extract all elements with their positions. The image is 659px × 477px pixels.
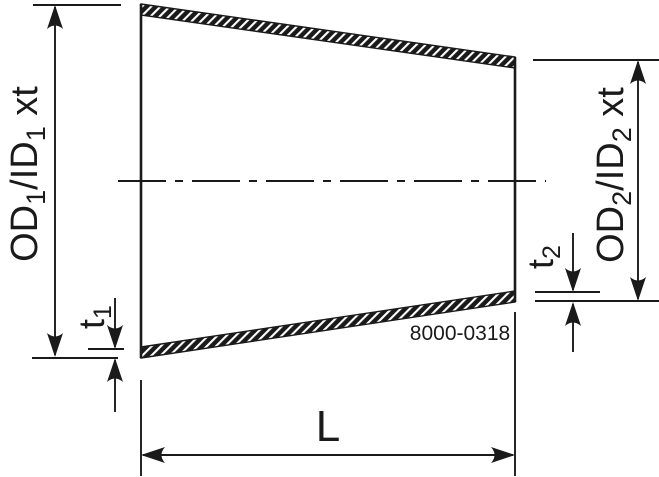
od2-label-suffix: xt xyxy=(590,87,632,128)
arrowhead-right-icon xyxy=(491,447,515,463)
arrowhead-up-icon xyxy=(630,60,646,84)
length-label: L xyxy=(316,402,340,451)
reducer-body xyxy=(118,4,546,358)
arrowhead-up-icon xyxy=(47,5,63,29)
arrowhead-up-icon xyxy=(107,358,123,382)
od2-label-mid: /ID xyxy=(590,142,632,191)
od2-label-prefix: OD xyxy=(590,206,632,263)
t2-label-subscript: 2 xyxy=(538,245,566,259)
od1-label-subscript2: 1 xyxy=(21,126,51,141)
t1-label: t1 xyxy=(71,305,117,329)
drawing-number: 8000-0318 xyxy=(410,322,510,345)
t1-label-prefix: t xyxy=(71,319,112,329)
reducer-dimension-drawing: OD1/ID1 xt OD2/ID2 xt t1 t2 L 8000-0318 xyxy=(0,0,659,477)
od1-label-mid: /ID xyxy=(4,141,46,190)
arrowhead-down-icon xyxy=(47,333,63,357)
od2-label-subscript1: 2 xyxy=(607,191,637,206)
od1-label-prefix: OD xyxy=(4,205,46,262)
arrowhead-down-icon xyxy=(565,268,581,292)
top-wall-hatched xyxy=(141,4,515,68)
od2-label-subscript2: 2 xyxy=(607,127,637,142)
arrowhead-down-icon xyxy=(630,277,646,301)
od1-label: OD1/ID1 xt xyxy=(4,86,51,262)
arrowhead-left-icon xyxy=(141,447,165,463)
od1-label-suffix: xt xyxy=(4,86,46,127)
arrowhead-up-icon xyxy=(565,302,581,326)
t2-label-prefix: t xyxy=(520,259,561,269)
t1-label-subscript: 1 xyxy=(89,305,117,319)
t2-label: t2 xyxy=(520,245,566,269)
od1-label-subscript1: 1 xyxy=(21,190,51,205)
od2-label: OD2/ID2 xt xyxy=(590,87,637,263)
technical-drawing-canvas: OD1/ID1 xt OD2/ID2 xt t1 t2 L 8000-0318 xyxy=(0,0,659,477)
